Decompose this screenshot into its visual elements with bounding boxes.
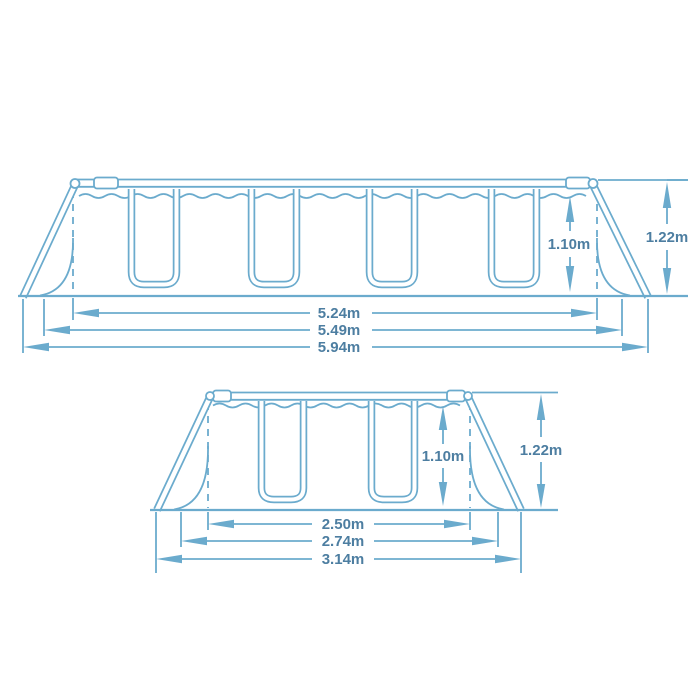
water-depth-label: 1.10m	[548, 236, 591, 253]
arrow-right-icon	[622, 343, 648, 351]
leg-right-inner	[468, 397, 521, 510]
support-post-inner	[252, 189, 297, 285]
width-middle-label: 5.49m	[318, 322, 361, 339]
arrow-down-icon	[537, 484, 545, 508]
support-post	[372, 401, 415, 500]
dim-width-outer: 5.94m	[23, 339, 648, 356]
dim-width-outer: 3.14m	[156, 551, 521, 568]
arrow-right-icon	[495, 555, 521, 563]
width-outer-label: 5.94m	[318, 339, 361, 356]
leg-left-inner	[23, 185, 75, 297]
rail-joint	[213, 391, 231, 402]
dim-width-inner: 5.24m	[73, 305, 597, 322]
arrow-down-icon	[663, 268, 671, 294]
dim-total-height: 1.22m	[646, 182, 689, 294]
total-height-label: 1.22m	[646, 229, 689, 246]
width-inner-label: 2.50m	[322, 516, 365, 533]
dim-water-depth: 1.10m	[548, 196, 591, 292]
frame-legs	[157, 397, 521, 510]
support-post	[132, 189, 177, 285]
width-inner-label: 5.24m	[318, 305, 361, 322]
water-depth-label: 1.10m	[422, 448, 465, 465]
dim-width-inner: 2.50m	[208, 516, 470, 533]
support-post-inner	[370, 189, 415, 285]
support-post	[252, 189, 297, 285]
width-middle-label: 2.74m	[322, 533, 365, 550]
width-outer-label: 3.14m	[322, 551, 365, 568]
leg-left-inner	[157, 397, 210, 510]
support-post-inner	[372, 401, 415, 500]
arrow-right-icon	[596, 326, 622, 334]
dim-width-middle: 5.49m	[44, 322, 622, 339]
support-posts	[132, 189, 537, 285]
arrow-down-icon	[439, 482, 447, 506]
top-rail	[206, 391, 472, 402]
rail-corner-cap	[464, 392, 472, 400]
arrow-right-icon	[472, 537, 498, 545]
rail-joint	[94, 178, 118, 189]
pool-dimensions-diagram: 1.10m 1.22m 5.24m 5.49m	[0, 0, 700, 700]
water-line	[79, 194, 586, 198]
support-post-inner	[132, 189, 177, 285]
rail-corner-cap	[71, 179, 80, 188]
long-side-view: 1.10m 1.22m 5.24m 5.49m	[18, 178, 688, 357]
dim-width-middle: 2.74m	[181, 533, 498, 550]
arrow-right-icon	[571, 309, 597, 317]
support-post	[262, 401, 304, 500]
top-rail	[71, 178, 598, 189]
short-side-view: 1.10m 1.22m 2.50m 2.74m	[150, 391, 562, 574]
arrow-right-icon	[444, 520, 470, 528]
support-post-inner	[492, 189, 537, 285]
support-post-inner	[262, 401, 304, 500]
total-height-label: 1.22m	[520, 442, 563, 459]
rail-joint	[447, 391, 465, 402]
leg-right-inner	[593, 185, 648, 297]
rail-corner-cap	[589, 179, 598, 188]
rail-corner-cap	[206, 392, 214, 400]
support-post	[492, 189, 537, 285]
water-line	[213, 404, 460, 408]
dim-water-depth: 1.10m	[422, 406, 465, 506]
support-post	[370, 189, 415, 285]
rail-joint	[566, 178, 590, 189]
dim-total-height: 1.22m	[520, 394, 563, 508]
arrow-down-icon	[566, 266, 574, 292]
support-posts	[262, 401, 415, 500]
